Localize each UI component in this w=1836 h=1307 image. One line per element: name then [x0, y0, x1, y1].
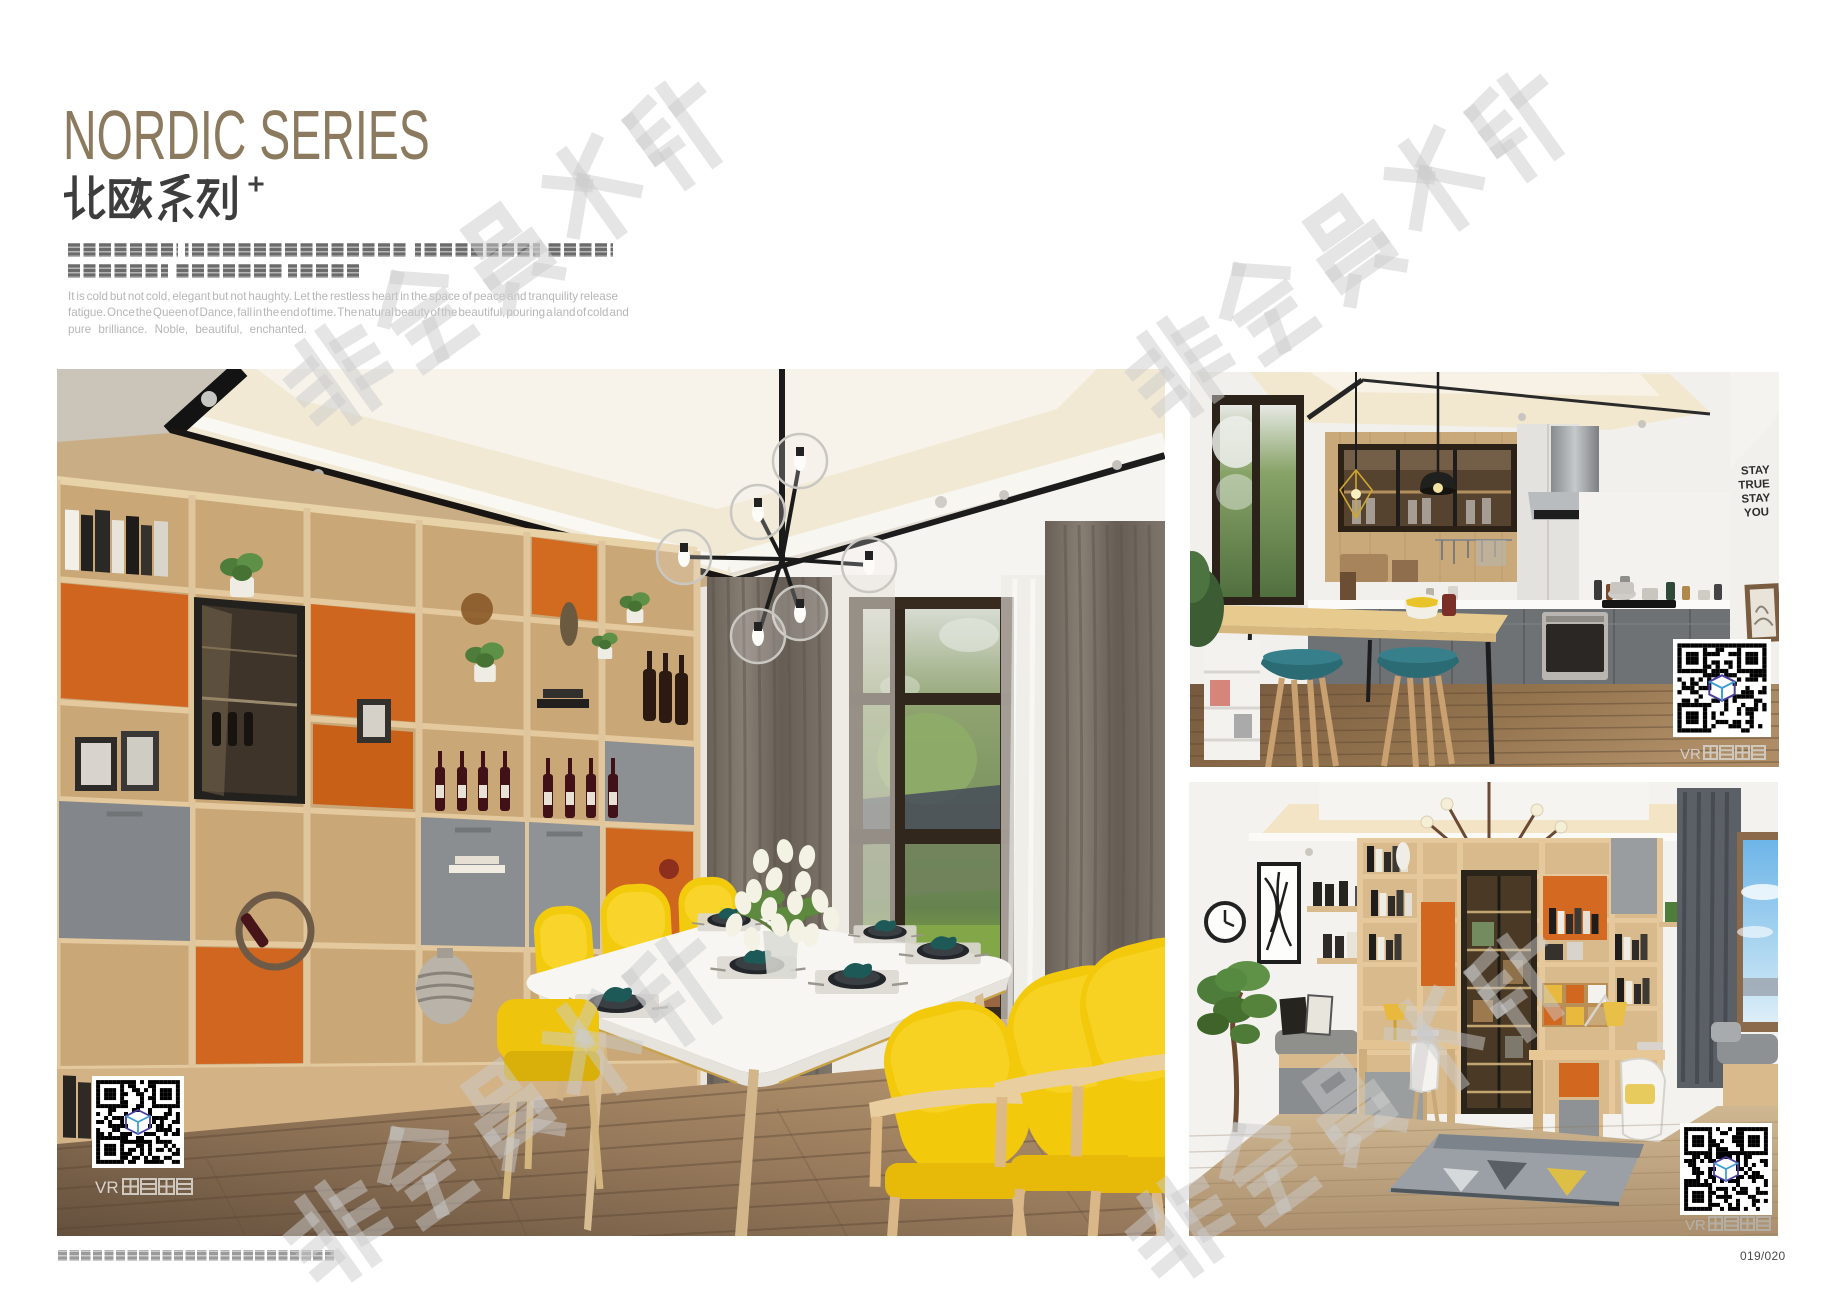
svg-text:TRUE: TRUE: [1738, 478, 1770, 492]
svg-text:YOU: YOU: [1744, 506, 1770, 519]
svg-text:STAY: STAY: [1741, 464, 1771, 478]
svg-text:VR: VR: [95, 1178, 119, 1197]
svg-text:VR: VR: [1680, 746, 1701, 763]
svg-text:VR: VR: [1685, 1217, 1706, 1234]
svg-text:STAY: STAY: [1741, 492, 1771, 506]
